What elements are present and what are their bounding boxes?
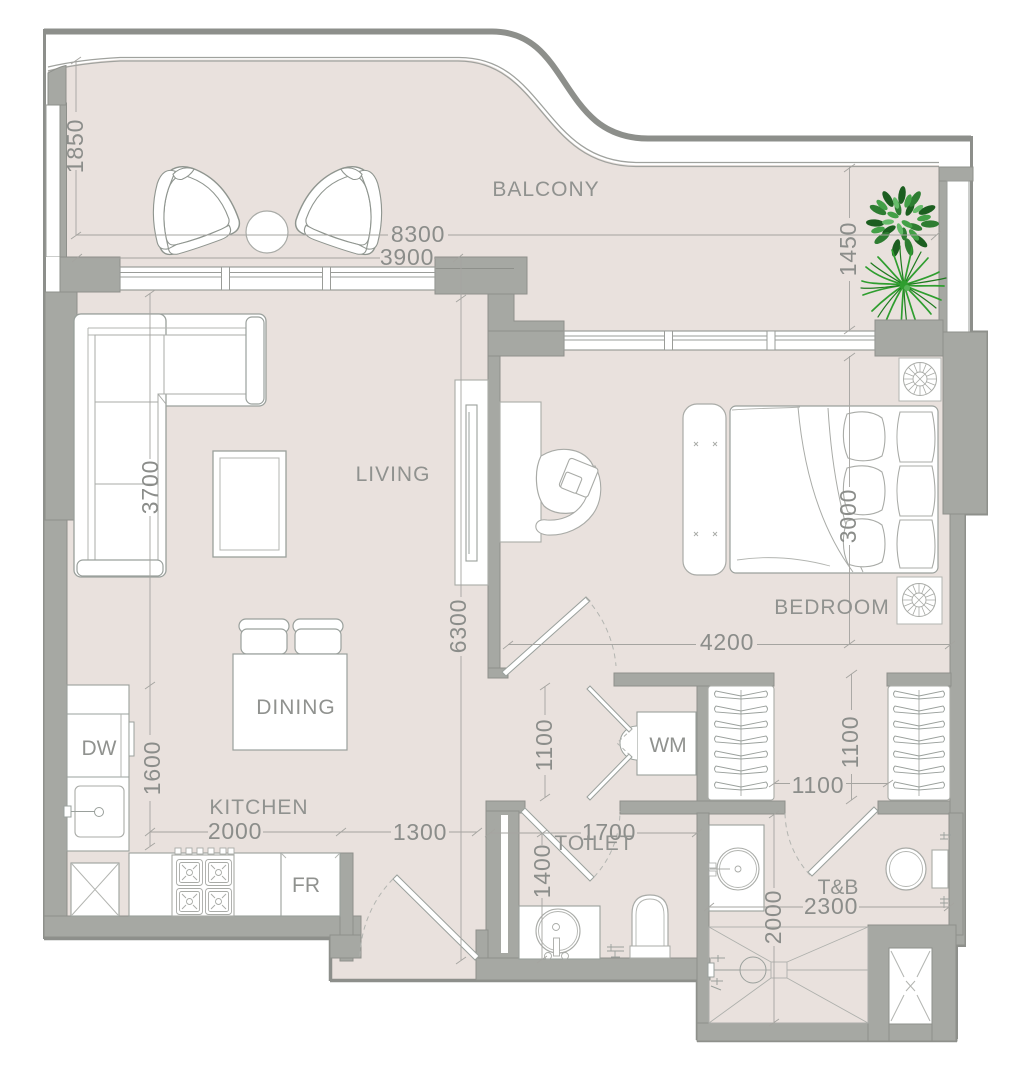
svg-text:1600: 1600 bbox=[139, 741, 165, 795]
svg-text:LIVING: LIVING bbox=[356, 463, 431, 486]
svg-text:FR: FR bbox=[292, 874, 320, 897]
svg-text:4200: 4200 bbox=[700, 629, 754, 655]
svg-text:1850: 1850 bbox=[62, 119, 88, 173]
svg-text:DW: DW bbox=[82, 737, 117, 760]
svg-text:2000: 2000 bbox=[208, 818, 262, 844]
svg-text:WM: WM bbox=[649, 734, 686, 757]
svg-text:3700: 3700 bbox=[137, 460, 163, 514]
svg-text:6300: 6300 bbox=[445, 599, 471, 653]
svg-text:1100: 1100 bbox=[792, 772, 845, 798]
svg-text:1450: 1450 bbox=[835, 222, 861, 276]
svg-text:3900: 3900 bbox=[380, 244, 434, 270]
svg-text:TOILET: TOILET bbox=[554, 832, 633, 855]
svg-text:DINING: DINING bbox=[256, 696, 336, 719]
svg-text:1300: 1300 bbox=[393, 819, 447, 845]
svg-text:BEDROOM: BEDROOM bbox=[774, 596, 890, 619]
svg-text:1100: 1100 bbox=[531, 719, 557, 772]
svg-text:2000: 2000 bbox=[760, 890, 786, 944]
svg-text:3000: 3000 bbox=[835, 489, 861, 543]
svg-text:1400: 1400 bbox=[529, 844, 555, 898]
svg-text:1100: 1100 bbox=[837, 716, 863, 769]
svg-text:T&B: T&B bbox=[818, 876, 859, 899]
svg-text:BALCONY: BALCONY bbox=[492, 178, 599, 201]
svg-text:KITCHEN: KITCHEN bbox=[209, 796, 308, 819]
